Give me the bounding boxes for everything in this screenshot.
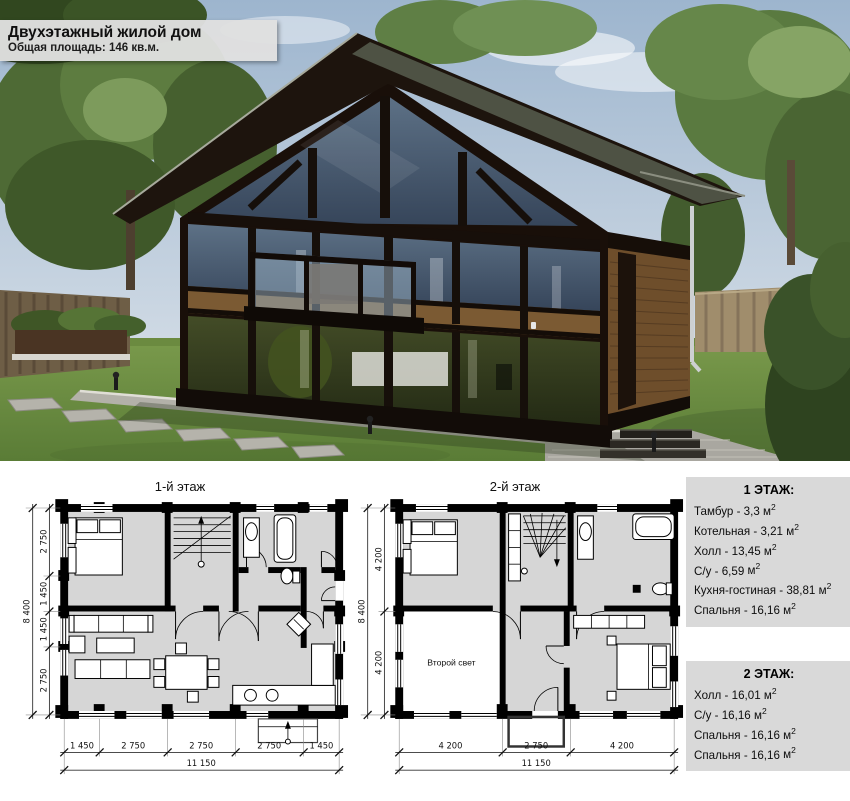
svg-text:2 750: 2 750 [38, 668, 48, 692]
room-area: 16,16 [751, 604, 780, 617]
plan2-title: 2-й этаж [345, 479, 685, 494]
svg-text:4 200: 4 200 [610, 740, 634, 750]
room-line: Котельная - 3,21 м2 [694, 520, 844, 540]
room-area: 3,3 [744, 505, 760, 518]
svg-text:2 750: 2 750 [121, 740, 145, 750]
dash: - [711, 564, 721, 577]
page-subtitle: Общая площадь: 146 кв.м. [8, 42, 269, 56]
area-unit: м2 [763, 505, 776, 518]
floor-plan-2: Второй свет 4 200 2 750 4 200 11 150 4 2… [345, 496, 685, 791]
room-name: С/у [694, 564, 711, 577]
svg-text:11 150: 11 150 [522, 758, 551, 768]
dash: - [721, 545, 731, 558]
area-unit: м2 [786, 525, 799, 538]
svg-text:1 450: 1 450 [70, 740, 94, 750]
area-unit: м2 [819, 584, 832, 597]
room-line: Холл - 16,01 м2 [694, 684, 844, 704]
room-area: 16,16 [751, 748, 780, 761]
room-name: Спальня [694, 748, 741, 761]
floor-plan-1: 1 450 2 750 2 750 2 750 1 450 11 150 2 7… [10, 496, 350, 791]
svg-text:2 750: 2 750 [257, 740, 281, 750]
room-line: С/у - 16,16 м2 [694, 704, 844, 724]
area-unit: м2 [754, 709, 767, 722]
room-name: Спальня [694, 729, 741, 742]
room-area: 16,16 [722, 709, 751, 722]
room-line: Спальня - 16,16 м2 [694, 599, 844, 619]
room-area: 6,59 [722, 564, 745, 577]
room-area: 16,16 [751, 729, 780, 742]
room-name: Спальня [694, 604, 741, 617]
svg-text:8 400: 8 400 [22, 600, 32, 624]
area-unit: м2 [783, 729, 796, 742]
room-line: Холл - 13,45 м2 [694, 540, 844, 560]
room-line: Спальня - 16,16 м2 [694, 724, 844, 744]
room-name: Тамбур [694, 505, 733, 518]
svg-text:2 750: 2 750 [38, 530, 48, 554]
room-line: Спальня - 16,16 м2 [694, 744, 844, 764]
svg-text:4 200: 4 200 [373, 651, 383, 675]
dash: - [711, 709, 721, 722]
svg-text:1 450: 1 450 [38, 617, 48, 641]
room-line: С/у - 6,59 м2 [694, 560, 844, 580]
svg-text:2 750: 2 750 [524, 740, 548, 750]
room-line: Кухня-гостиная - 38,81 м2 [694, 579, 844, 599]
logo-mark [531, 322, 536, 329]
balcony [244, 252, 424, 334]
floor2-info-title: 2 ЭТАЖ: [694, 667, 844, 681]
room-name: Котельная [694, 525, 750, 538]
svg-text:1 450: 1 450 [38, 582, 48, 606]
plan1-title: 1-й этаж [10, 479, 350, 494]
page: Двухэтажный жилой дом Общая площадь: 146… [0, 0, 850, 801]
side-wall [608, 232, 690, 432]
room-name: С/у [694, 709, 711, 722]
area-unit: м2 [783, 748, 796, 761]
svg-text:4 200: 4 200 [373, 547, 383, 571]
area-unit: м2 [783, 604, 796, 617]
void-room-label: Второй свет [427, 658, 475, 668]
dash: - [741, 748, 751, 761]
room-area: 3,21 [760, 525, 783, 538]
floor1-info-title: 1 ЭТАЖ: [694, 483, 844, 497]
room-name: Холл [694, 545, 721, 558]
dash: - [776, 584, 786, 597]
area-unit: м2 [764, 545, 777, 558]
room-name: Кухня-гостиная [694, 584, 776, 597]
room-area: 13,45 [732, 545, 761, 558]
room-area: 38,81 [786, 584, 815, 597]
page-title: Двухэтажный жилой дом [8, 24, 269, 42]
dash: - [750, 525, 760, 538]
svg-text:8 400: 8 400 [357, 600, 367, 624]
title-overlay: Двухэтажный жилой дом Общая площадь: 146… [0, 20, 277, 61]
floor1-info-box: 1 ЭТАЖ: Тамбур - 3,3 м2 Котельная - 3,21… [686, 477, 850, 627]
svg-text:2 750: 2 750 [189, 740, 213, 750]
room-line: Тамбур - 3,3 м2 [694, 500, 844, 520]
room-name: Холл [694, 689, 721, 702]
svg-text:4 200: 4 200 [438, 740, 462, 750]
room-area: 16,01 [732, 689, 761, 702]
floor2-info-box: 2 ЭТАЖ: Холл - 16,01 м2 С/у - 16,16 м2 С… [686, 661, 850, 771]
svg-text:11 150: 11 150 [187, 758, 216, 768]
dash: - [741, 604, 751, 617]
area-unit: м2 [748, 564, 761, 577]
dash: - [741, 729, 751, 742]
area-unit: м2 [764, 689, 777, 702]
house-render [0, 0, 850, 461]
dash: - [733, 505, 743, 518]
dash: - [721, 689, 731, 702]
svg-text:1 450: 1 450 [309, 740, 333, 750]
